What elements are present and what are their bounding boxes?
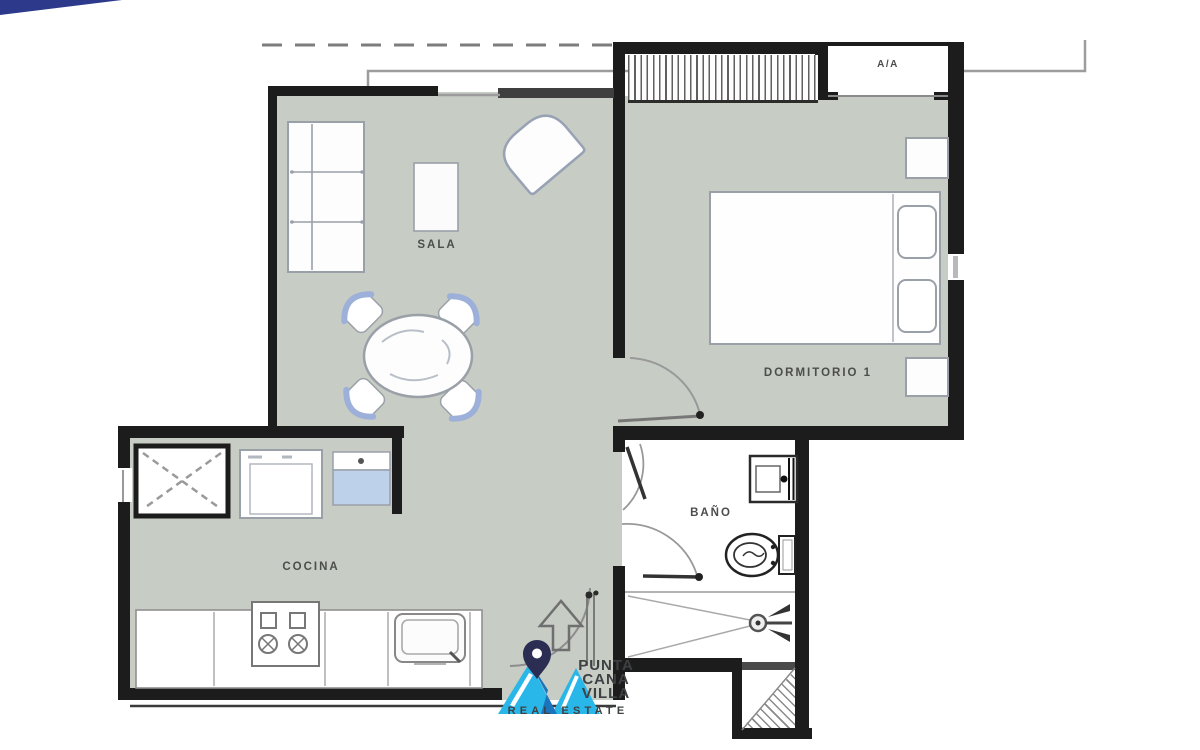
nightstand (906, 138, 948, 178)
label-bedroom: DORMITORIO 1 (752, 367, 884, 379)
pillow (898, 280, 936, 332)
ac-niche (825, 46, 948, 96)
laundry-sink-unit (333, 452, 390, 505)
label-ac-unit: A/A (856, 59, 920, 70)
location-pin-hole (532, 649, 542, 659)
washer-closet (136, 446, 228, 516)
sofa (288, 122, 364, 272)
sliding-door (498, 88, 614, 98)
floor-plan-page: SALA DORMITORIO 1 COCINA BAÑO A/A PUNTA … (0, 0, 1200, 750)
brand-name-line3: VILLA (558, 687, 654, 701)
brand-tagline: REAL ESTATE (490, 705, 646, 717)
dining-table (364, 315, 472, 397)
vanity-sink (750, 456, 797, 502)
label-living-room: SALA (397, 239, 477, 251)
corner-banner (0, 0, 122, 15)
closet-hatch (628, 55, 818, 103)
toilet (726, 534, 795, 576)
tv-console (414, 163, 458, 231)
refrigerator (240, 450, 322, 518)
kitchen-sink (395, 614, 465, 664)
pillow (898, 206, 936, 258)
label-bathroom: BAÑO (672, 507, 750, 519)
brand-logo-text: PUNTA CANA VILLA (558, 659, 654, 700)
floor-plan-canvas (0, 0, 1200, 750)
bed (710, 192, 940, 344)
label-kitchen: COCINA (266, 561, 356, 573)
bedroom-window-line (953, 256, 958, 278)
stove (252, 602, 319, 666)
nightstand (906, 358, 948, 396)
